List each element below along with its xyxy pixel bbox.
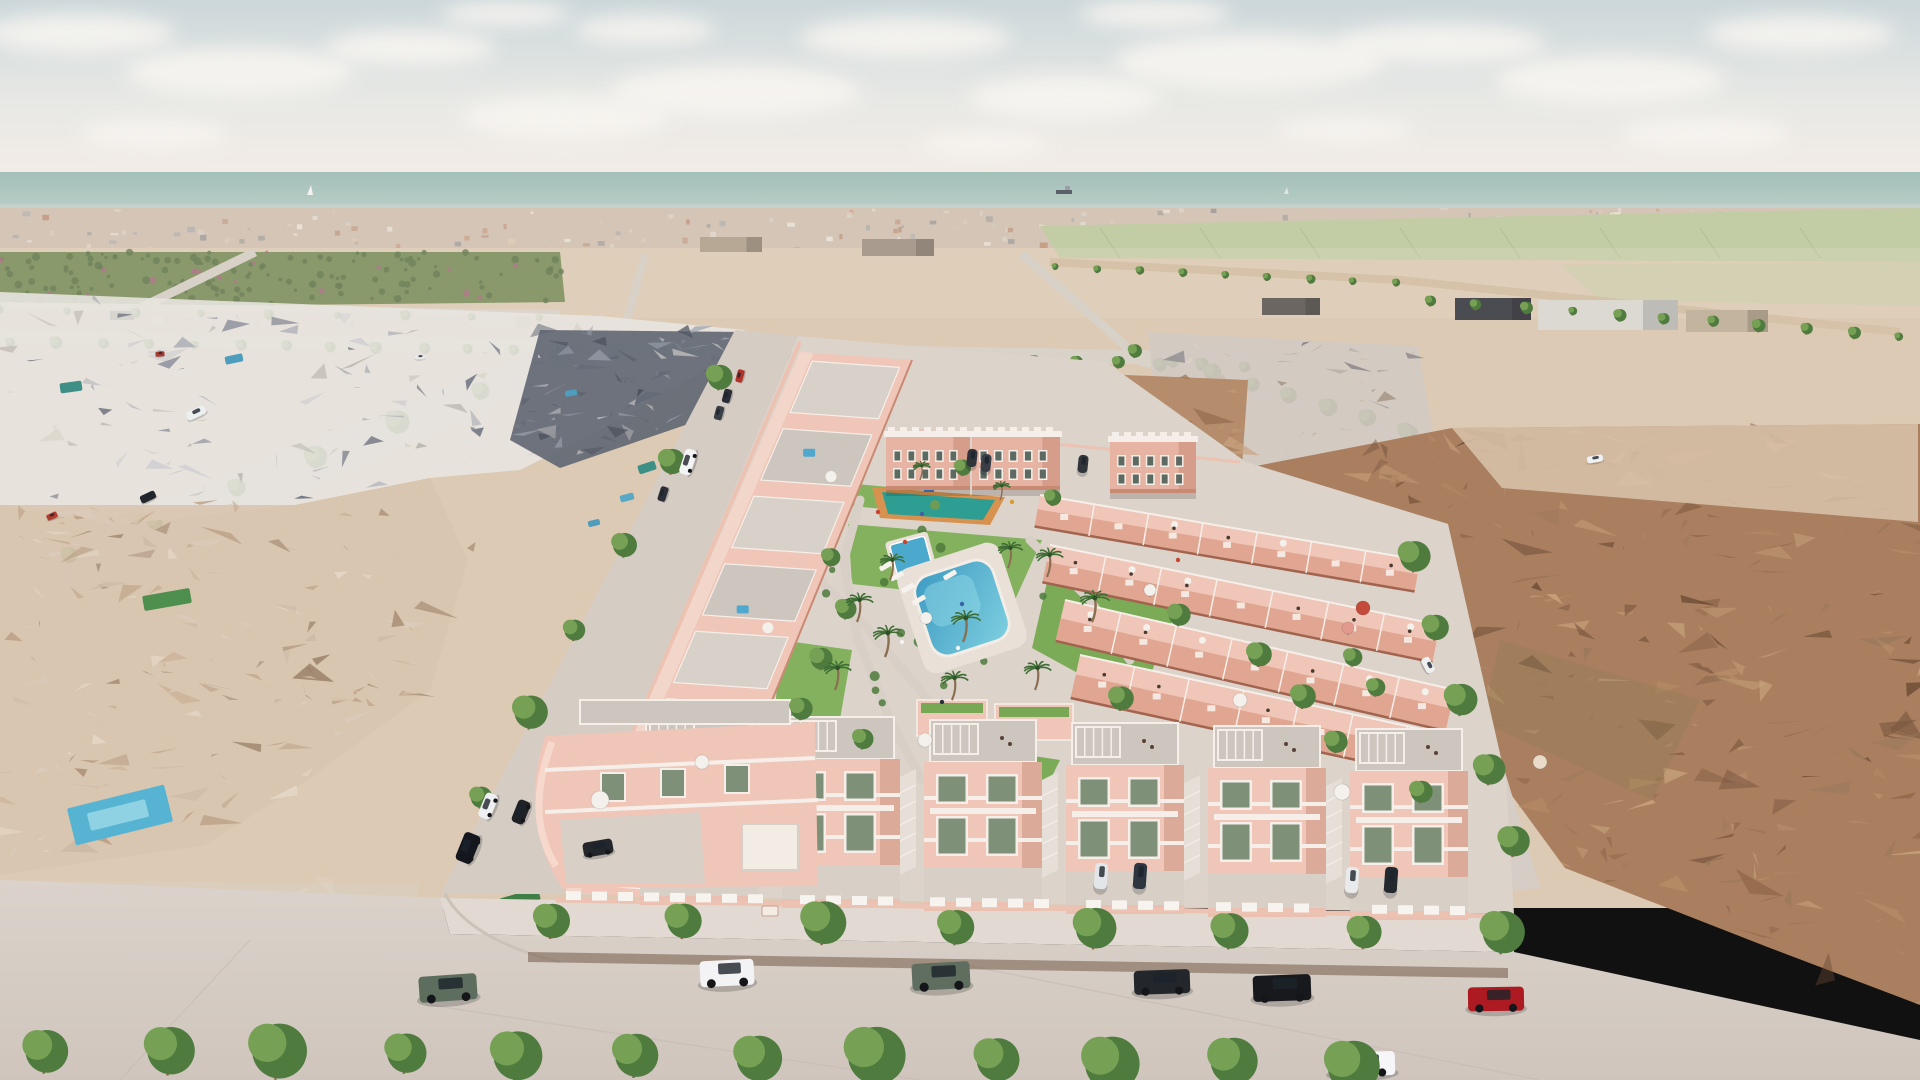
person — [903, 540, 907, 544]
picket-fence — [592, 892, 607, 901]
terrace-furniture — [1088, 618, 1092, 622]
balcony-slab — [930, 808, 1036, 814]
cloud — [1335, 24, 1545, 64]
window-glass — [1025, 470, 1031, 479]
car-glass — [1389, 870, 1395, 881]
window-glass — [726, 766, 748, 792]
window-glass — [923, 452, 929, 461]
crenellation — [1112, 432, 1119, 437]
patio — [560, 812, 705, 884]
crenellation — [1046, 427, 1053, 432]
window-glass — [909, 470, 915, 479]
roof-parapet — [1084, 626, 1092, 632]
terrace-umbrella — [1407, 623, 1414, 630]
crenellation — [1022, 427, 1029, 432]
roof-parapet — [1223, 542, 1231, 548]
crenellation — [1172, 432, 1179, 437]
window-glass — [1010, 470, 1016, 479]
crenellation — [1136, 432, 1143, 437]
picket-fence — [748, 894, 763, 903]
terrace-furniture — [1150, 745, 1154, 749]
window-glass — [923, 470, 929, 479]
roof-parapet — [1277, 551, 1285, 557]
window-glass — [1119, 457, 1125, 466]
cargo-ship-bridge — [1065, 186, 1070, 190]
car-glass — [1153, 972, 1177, 983]
picket-fence — [1034, 899, 1049, 908]
person — [900, 640, 904, 644]
car-glass — [1487, 990, 1511, 1000]
parasol — [695, 755, 709, 769]
car — [908, 961, 973, 997]
window-glass — [1147, 475, 1153, 484]
crenellation — [1160, 432, 1167, 437]
roof-parapet — [1098, 682, 1106, 688]
parasol — [1356, 601, 1370, 615]
pavilion-green-roof — [999, 707, 1069, 717]
terrace-furniture — [1074, 561, 1078, 565]
side-stair — [1042, 772, 1058, 878]
cloud — [440, 2, 570, 26]
garage-door — [742, 824, 798, 870]
scene-svg: Aerial 3D architectural rendering of a n… — [0, 0, 1920, 1080]
person — [876, 510, 880, 514]
roof-parapet — [1404, 637, 1412, 643]
person — [920, 512, 924, 516]
shrub — [1039, 593, 1046, 600]
base-course — [1110, 489, 1196, 493]
cloud — [610, 66, 860, 118]
roof-parapet — [1207, 705, 1215, 711]
terrace-umbrella — [1199, 637, 1206, 644]
window-glass — [1010, 452, 1016, 461]
person — [1176, 558, 1180, 562]
cloud — [970, 76, 1160, 120]
car — [1250, 974, 1315, 1008]
terrace-umbrella — [1422, 688, 1429, 695]
roof-parapet — [1060, 514, 1068, 520]
side-stair — [900, 769, 916, 875]
window-glass — [1162, 475, 1168, 484]
terrace-furniture — [1389, 564, 1393, 568]
roof-terrace — [930, 720, 1036, 762]
rooftop-umbrella — [825, 471, 836, 482]
glass-door — [1223, 825, 1250, 860]
parasol — [1334, 784, 1350, 800]
cloud — [800, 18, 1010, 58]
shrub — [872, 687, 880, 695]
window-glass — [1147, 457, 1153, 466]
roof-parapet — [1237, 602, 1245, 608]
crenellation — [936, 427, 943, 432]
parasol — [918, 733, 932, 747]
crenellation — [948, 427, 955, 432]
car-glass — [1350, 870, 1356, 881]
picket-fence — [1398, 905, 1413, 914]
window-glass — [1223, 783, 1250, 808]
cloud — [1705, 16, 1895, 52]
terrace-furniture — [1172, 527, 1176, 531]
balcony-slab — [1356, 817, 1462, 823]
car-glass — [931, 965, 956, 978]
picket-fence — [644, 892, 659, 901]
window-glass — [1081, 780, 1108, 805]
cloud — [125, 48, 355, 96]
terrace-furniture — [1408, 629, 1412, 633]
terrace-umbrella — [1143, 624, 1150, 631]
terrace-furniture — [1008, 742, 1012, 746]
crenellation — [974, 427, 981, 432]
roof-parapet — [1332, 560, 1340, 566]
glass-door — [1415, 828, 1442, 863]
picket-fence — [566, 891, 581, 900]
cloud — [1080, 0, 1230, 28]
roof-terrace — [1214, 726, 1320, 768]
base-course — [886, 486, 970, 490]
cloud — [1495, 56, 1725, 104]
picket-fence — [1242, 903, 1257, 912]
glass-door — [847, 816, 874, 851]
car-glass — [1099, 866, 1105, 877]
roof-parapet — [1418, 703, 1426, 709]
side-stair — [1184, 775, 1200, 881]
shrub — [870, 671, 880, 681]
crenellation — [960, 427, 967, 432]
picket-fence — [1372, 905, 1387, 914]
window-glass — [847, 774, 874, 799]
car-glass — [438, 977, 463, 990]
roof-terrace — [580, 700, 790, 724]
terrace-furniture — [1144, 631, 1148, 635]
window-glass — [937, 452, 943, 461]
person — [956, 646, 960, 650]
window-glass — [1119, 475, 1125, 484]
person — [960, 602, 964, 606]
terrace-furniture — [1102, 673, 1106, 677]
parasol — [1233, 693, 1247, 707]
glass-door — [1365, 828, 1392, 863]
glass-door — [1081, 822, 1108, 857]
window-glass — [1133, 457, 1139, 466]
terrace-furniture — [1157, 685, 1161, 689]
window-glass — [995, 452, 1001, 461]
window-glass — [1176, 457, 1182, 466]
picket-fence — [618, 892, 633, 901]
terrace-furniture — [1434, 751, 1438, 755]
window-glass — [989, 777, 1016, 802]
cargo-ship-icon — [1056, 190, 1072, 194]
picket-fence — [930, 897, 945, 906]
car-glass — [1272, 978, 1297, 990]
picket-fence — [1164, 901, 1179, 910]
picket-fence — [1450, 906, 1465, 915]
crenellation — [924, 427, 931, 432]
picket-fence — [878, 896, 893, 905]
crenellation — [1184, 432, 1191, 437]
glass-door — [989, 819, 1016, 854]
picket-fence — [1008, 899, 1023, 908]
roof-parapet — [1195, 652, 1203, 658]
roof-parapet — [1386, 570, 1394, 576]
roof-parapet — [1262, 717, 1270, 723]
glass-door — [1131, 822, 1158, 857]
roof-parapet — [1153, 693, 1161, 699]
window-glass — [1040, 470, 1046, 479]
crenellation — [998, 427, 1005, 432]
cloud — [575, 16, 715, 44]
window-glass — [995, 470, 1001, 479]
roof-parapet — [1307, 677, 1315, 683]
roof-parapet — [1070, 568, 1078, 574]
picket-fence — [1112, 900, 1127, 909]
crenellation — [1148, 432, 1155, 437]
front-townhouse — [1350, 729, 1468, 920]
crenellation — [900, 427, 907, 432]
window-glass — [951, 452, 957, 461]
picket-fence — [1086, 900, 1101, 909]
window-glass — [1176, 475, 1182, 484]
terrace-umbrella — [1184, 578, 1191, 585]
cloud — [920, 132, 1050, 156]
roof-terrace — [1356, 729, 1462, 771]
car-glass — [718, 962, 741, 974]
picket-fence — [982, 898, 997, 907]
roof-terrace — [1072, 723, 1178, 765]
cloud — [1620, 118, 1790, 150]
crenellation — [888, 427, 895, 432]
window-glass — [895, 470, 901, 479]
crenellation — [986, 427, 993, 432]
picket-fence — [956, 898, 971, 907]
terrace-furniture — [1185, 584, 1189, 588]
terrace-furniture — [1226, 536, 1230, 540]
window-glass — [1131, 780, 1158, 805]
car — [1465, 986, 1527, 1016]
apartment-block — [1108, 432, 1198, 499]
rooftop-plunge-pool — [737, 605, 749, 613]
splash-island — [930, 500, 940, 510]
balcony-slab — [1214, 814, 1320, 820]
terrace-umbrella — [1129, 566, 1136, 573]
terrace-umbrella — [1280, 540, 1287, 547]
shrub — [880, 578, 889, 587]
terrace-furniture — [1296, 607, 1300, 611]
car — [1131, 969, 1194, 1000]
picket-fence — [852, 896, 867, 905]
terrace-furniture — [1142, 739, 1146, 743]
window-glass — [951, 470, 957, 479]
picket-fence — [1138, 901, 1153, 910]
window-glass — [1365, 786, 1392, 811]
rooftop-plunge-pool — [803, 449, 815, 457]
terrace-furniture — [1292, 748, 1296, 752]
cloud — [80, 120, 230, 148]
car — [697, 958, 758, 993]
picket-fence — [1424, 906, 1439, 915]
picket-fence — [1268, 903, 1283, 912]
crenellation — [1124, 432, 1131, 437]
glass-door — [1273, 825, 1300, 860]
person — [1010, 500, 1014, 504]
cloud — [325, 30, 495, 66]
car-glass — [1138, 866, 1144, 877]
terrace-furniture — [1352, 618, 1356, 622]
roof-parapet — [1139, 639, 1147, 645]
pavilion-green-roof — [921, 703, 983, 713]
roof-parapet — [1114, 523, 1122, 529]
base-course — [972, 486, 1060, 490]
terrace-furniture — [1311, 669, 1315, 673]
parasol — [591, 791, 609, 809]
terrace-furniture — [1284, 742, 1288, 746]
shrub — [936, 543, 946, 553]
window-glass — [1133, 475, 1139, 484]
picket-fence — [1216, 902, 1231, 911]
person — [940, 700, 944, 704]
car — [414, 354, 425, 361]
window-glass — [1162, 457, 1168, 466]
picket-fence — [696, 893, 711, 902]
terrace-furniture — [1000, 736, 1004, 740]
aerial-development-render: Aerial 3D architectural rendering of a n… — [0, 0, 1920, 1080]
cloud — [1275, 118, 1415, 142]
picket-fence — [722, 894, 737, 903]
terrace-furniture — [1426, 745, 1430, 749]
crenellation — [912, 427, 919, 432]
window-glass — [909, 452, 915, 461]
window-glass — [1040, 452, 1046, 461]
picket-fence — [1294, 903, 1309, 912]
roof-parapet — [1169, 533, 1177, 539]
roof-parapet — [1125, 580, 1133, 586]
window-glass — [1025, 452, 1031, 461]
balcony-slab — [1072, 811, 1178, 817]
window-glass — [939, 777, 966, 802]
window-glass — [1273, 783, 1300, 808]
picket-fence — [670, 893, 685, 902]
roof-parapet — [1181, 591, 1189, 597]
terrace-furniture — [1266, 708, 1270, 712]
crenellation — [1034, 427, 1041, 432]
rooftop-umbrella — [762, 622, 773, 633]
shrub — [822, 589, 830, 597]
crenellation — [1010, 427, 1017, 432]
window-glass — [662, 770, 684, 796]
shrub — [829, 567, 835, 573]
parasol — [1533, 755, 1547, 769]
terrace-furniture — [1129, 572, 1133, 576]
roof-parapet — [1293, 614, 1301, 620]
window-glass — [937, 470, 943, 479]
entrance-sign — [762, 906, 778, 916]
shrub — [879, 699, 886, 706]
window-glass — [895, 452, 901, 461]
glass-door — [939, 819, 966, 854]
